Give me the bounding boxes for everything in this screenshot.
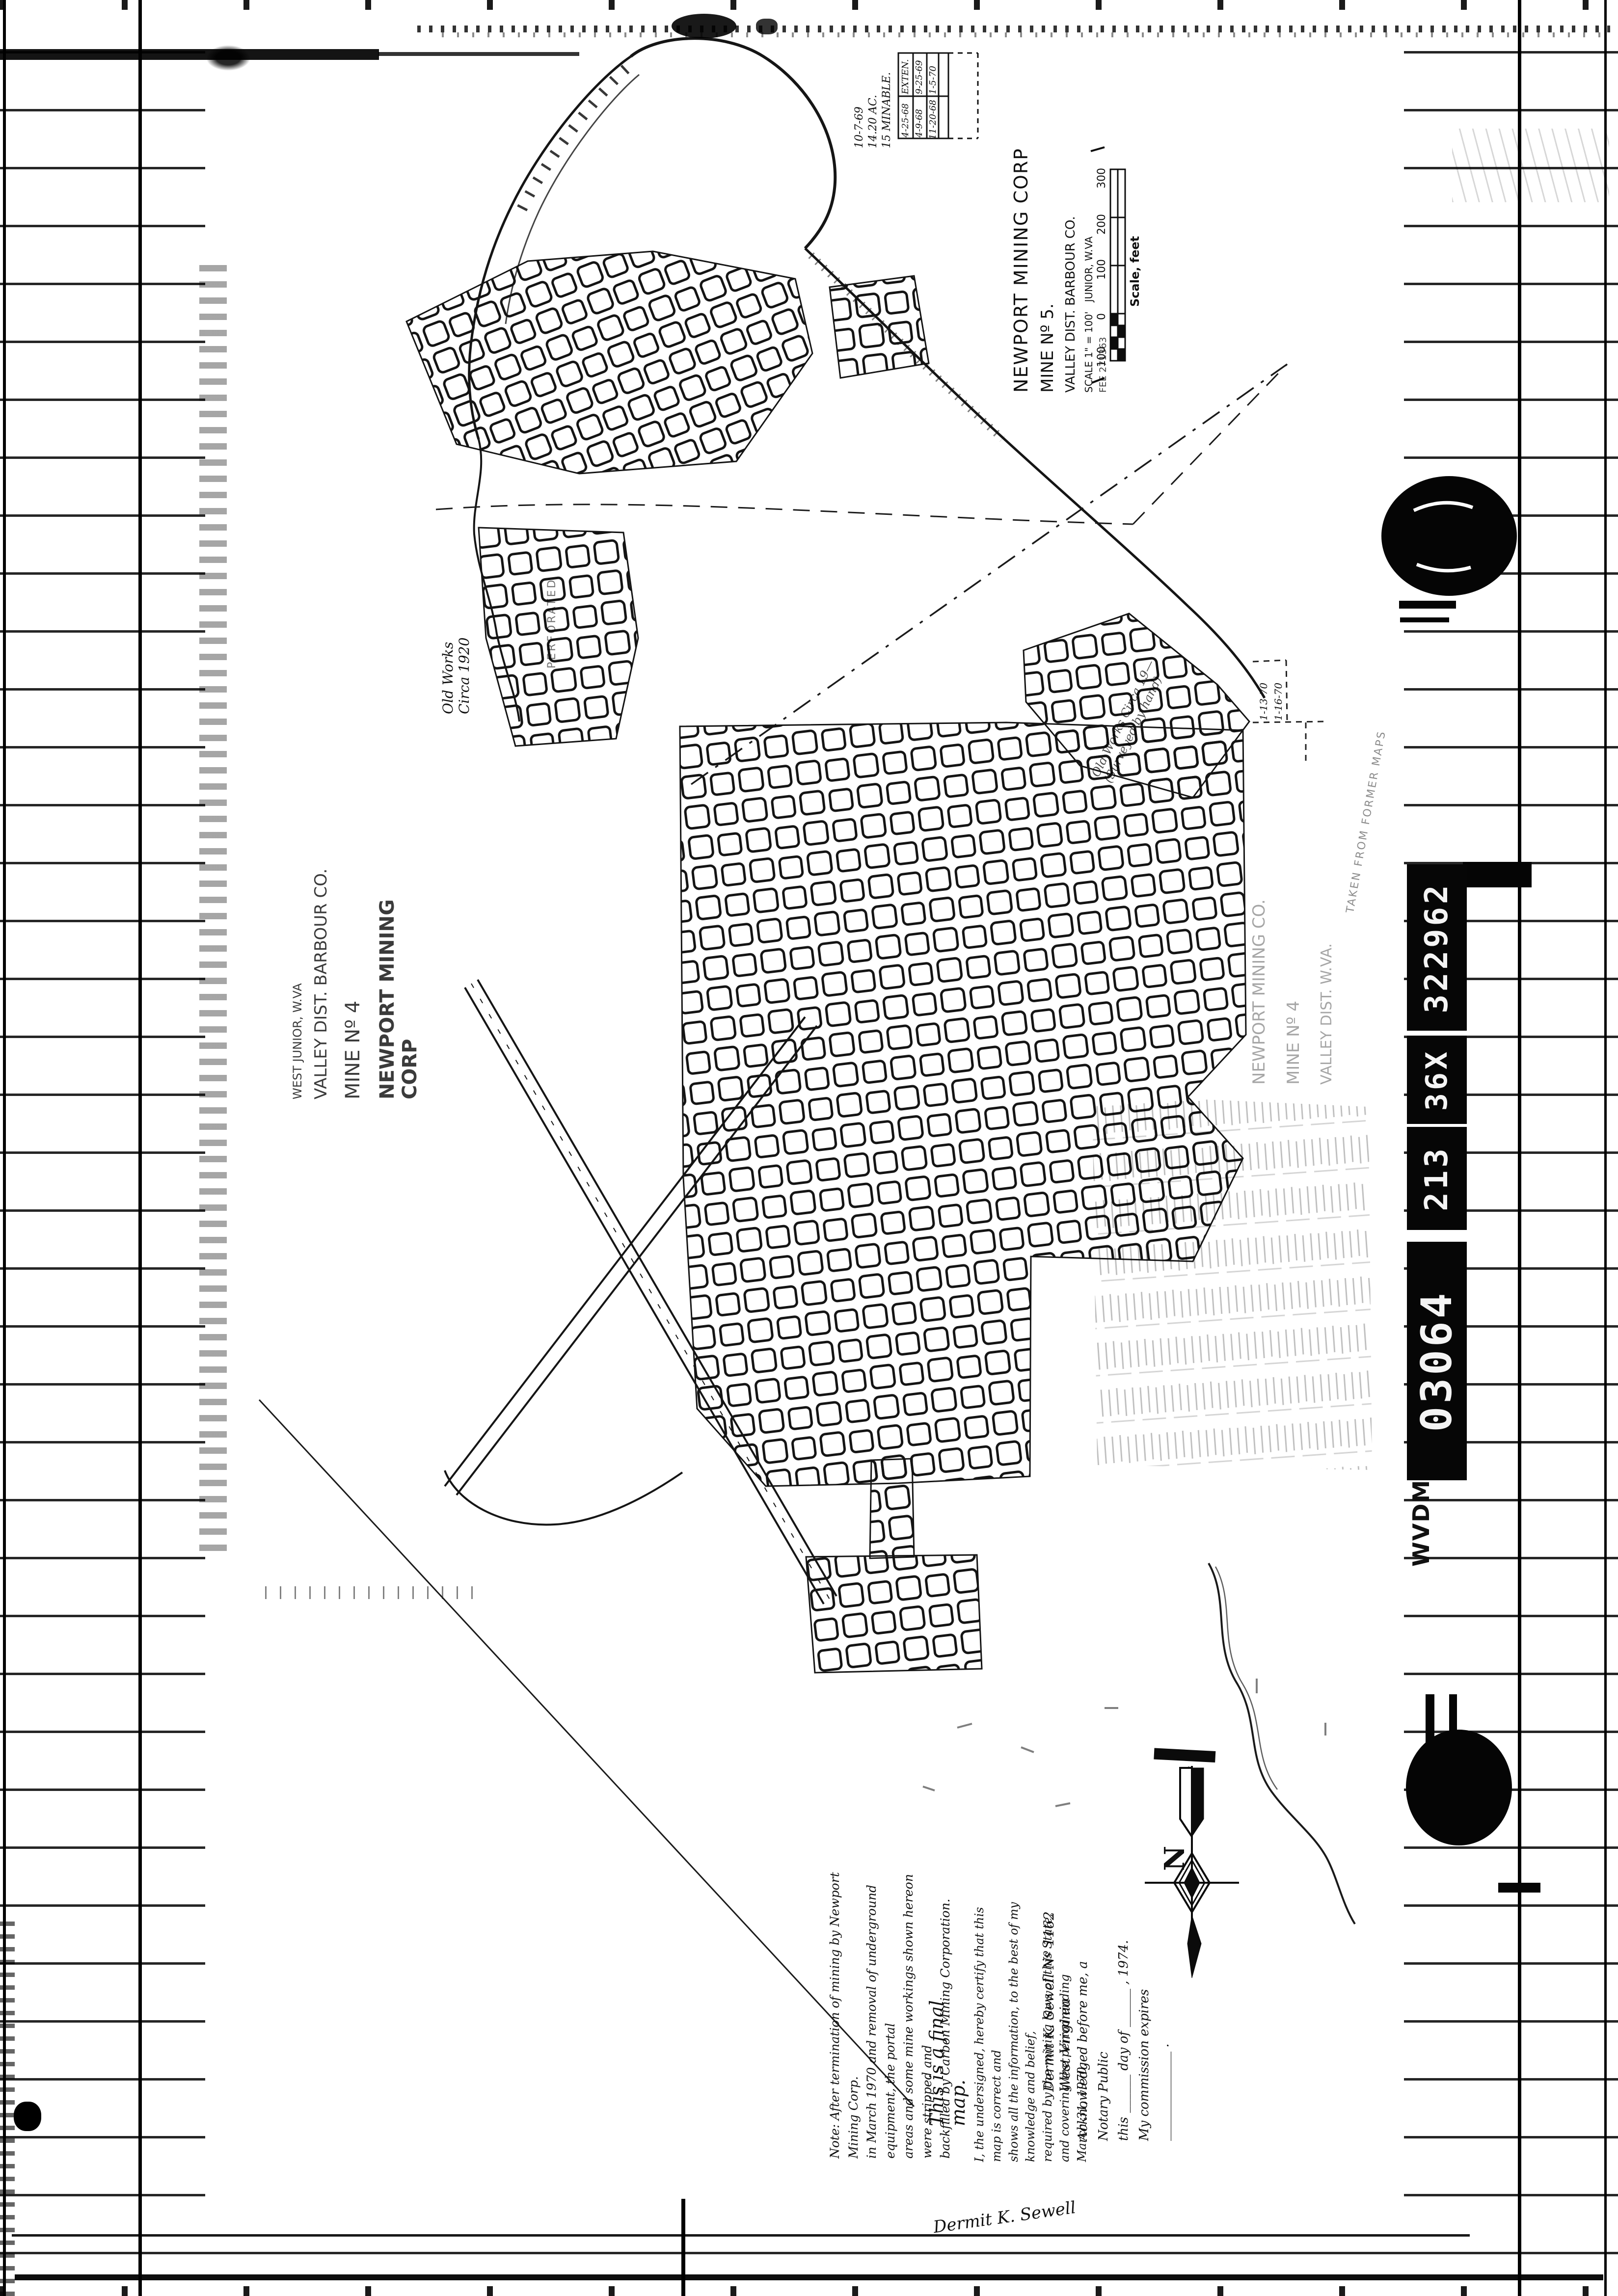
perforated-label: PERFORATED bbox=[546, 578, 558, 668]
film-id-text: 213 bbox=[1419, 1146, 1455, 1211]
film-noise-patch bbox=[1452, 129, 1609, 202]
revision-annotation: 15 MINABLE. bbox=[881, 72, 893, 148]
film-id-segment: 322962 bbox=[1407, 864, 1467, 1031]
ink-blob bbox=[756, 19, 778, 34]
revision-cell: 11-20-68 bbox=[928, 100, 938, 139]
film-noise-band bbox=[417, 26, 1610, 32]
title-district: VALLEY DIST. BARBOUR CO. bbox=[1063, 162, 1078, 393]
note-line: Note: After termination of mining by New… bbox=[826, 1844, 863, 2159]
certification-line: I, the undersigned, hereby certify that … bbox=[971, 1897, 1005, 2162]
pencil-title-line: MINE Nº 4 bbox=[1284, 839, 1303, 1085]
old-works-label: Old Works Circa 1920 bbox=[440, 616, 472, 714]
film-grid-line bbox=[15, 2274, 1603, 2280]
pencil-title-line: NEWPORT MINING CORP bbox=[376, 854, 421, 1099]
film-grid-line bbox=[681, 2199, 685, 2296]
revision-annotation: 10-7-69 bbox=[853, 107, 865, 148]
old-works-line: Circa 1920 bbox=[456, 616, 472, 714]
old-works-line: Old Works bbox=[440, 616, 456, 714]
north-label: N bbox=[1159, 1846, 1191, 1871]
pencil-title-right: NEWPORT MINING CO. MINE Nº 4 VALLEY DIST… bbox=[1249, 839, 1335, 1085]
extension-date: 1-16-70 bbox=[1272, 683, 1284, 721]
film-id-text: 36X bbox=[1420, 1049, 1454, 1111]
title-scale: SCALE 1" = 100' bbox=[1083, 311, 1095, 393]
title-mine: MINE Nº 5. bbox=[1038, 162, 1057, 393]
scale-tick-label: 200 bbox=[1096, 214, 1108, 235]
film-id-segment: 213 bbox=[1407, 1127, 1467, 1230]
extension-date: 1-13-70 bbox=[1258, 683, 1269, 721]
final-map-note: This is a final map. bbox=[926, 1959, 969, 2126]
revision-cell: 9-25-69 bbox=[914, 60, 924, 94]
title-location: JUNIOR, W.VA bbox=[1083, 237, 1095, 302]
film-id-segment: 36X bbox=[1407, 1036, 1467, 1124]
sheet-edge-smudge bbox=[199, 265, 227, 1551]
pencil-title-line: VALLEY DIST. BARBOUR CO. bbox=[311, 854, 331, 1099]
revision-cell: 4-25-68 bbox=[900, 104, 911, 137]
film-edge-speckle bbox=[0, 1914, 15, 2296]
pencil-title-line: MINE Nº 4 bbox=[342, 854, 364, 1099]
film-noise-band bbox=[442, 32, 1610, 37]
ink-blob bbox=[672, 14, 736, 38]
certification-line: shows all the information, to the best o… bbox=[1005, 1897, 1040, 2162]
title-scale-location: SCALE 1" = 100' JUNIOR, W.VA bbox=[1083, 162, 1095, 393]
title-block: NEWPORT MINING CORP MINE Nº 5. VALLEY DI… bbox=[1010, 162, 1108, 393]
ink-blob bbox=[14, 2102, 41, 2131]
agency-code-label: WVDM bbox=[1408, 1479, 1434, 1567]
title-company: NEWPORT MINING CORP bbox=[1010, 162, 1032, 393]
revision-annotation: 14.20 AC. bbox=[867, 95, 879, 148]
pencil-title-line: WEST JUNIOR, W.VA bbox=[291, 854, 304, 1099]
film-id-segment: 03064 bbox=[1407, 1242, 1467, 1480]
notary-line: Acknowledged before me, a Notary Public bbox=[1073, 1925, 1114, 2141]
film-id-text: 322962 bbox=[1419, 882, 1455, 1013]
film-artifact-bar bbox=[0, 49, 379, 60]
film-grid-line bbox=[12, 2234, 1470, 2237]
notary-line: this ______ day of ______ , 1974. bbox=[1114, 1925, 1134, 2141]
certifier-signature: Dermit K. Sewell Nº 1162 West Virginia bbox=[1041, 1896, 1073, 2092]
pencil-title-left: WEST JUNIOR, W.VA VALLEY DIST. BARBOUR C… bbox=[291, 854, 421, 1099]
film-id-text: 03064 bbox=[1412, 1290, 1461, 1432]
notary-block: Acknowledged before me, a Notary Public … bbox=[1073, 1925, 1175, 2141]
scale-tick-label: 0 bbox=[1096, 313, 1108, 320]
scale-tick-label: 100 bbox=[1096, 347, 1108, 367]
note-line: in March 1970 and removal of underground… bbox=[863, 1844, 899, 2159]
film-artifact-bar bbox=[378, 52, 579, 56]
scale-tick-label: 300 bbox=[1096, 168, 1108, 188]
notary-line: My commission expires ______________ . bbox=[1134, 1925, 1175, 2141]
pencil-title-line: VALLEY DIST. W.VA. bbox=[1318, 839, 1335, 1085]
scale-caption: Scale, feet bbox=[1128, 236, 1142, 307]
revision-cell: 4-9-68 bbox=[914, 109, 924, 137]
mine-map-drawing bbox=[0, 0, 1618, 2296]
scale-tick-label: 100 bbox=[1096, 259, 1108, 280]
revision-cell: EXTEN. bbox=[900, 59, 911, 94]
pencil-title-line: NEWPORT MINING CO. bbox=[1249, 839, 1269, 1085]
revision-cell: 1-5-70 bbox=[928, 66, 938, 94]
microfilm-frame: NEWPORT MINING CORP MINE Nº 5. VALLEY DI… bbox=[0, 0, 1618, 2296]
